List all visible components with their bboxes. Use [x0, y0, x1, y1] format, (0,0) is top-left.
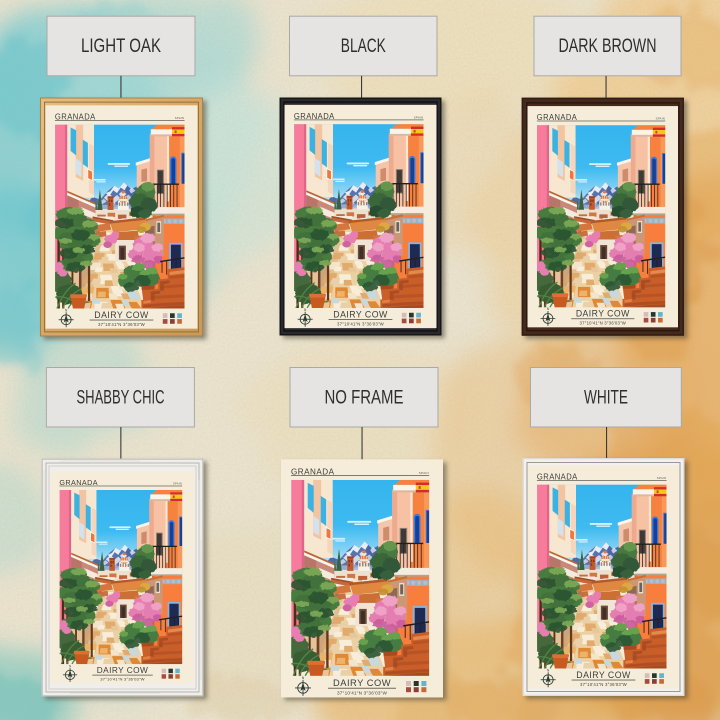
svg-text:DARK BROWN: DARK BROWN [559, 35, 657, 57]
svg-text:NO FRAME: NO FRAME [325, 387, 404, 409]
svg-text:LIGHT OAK: LIGHT OAK [81, 35, 161, 57]
svg-text:SHABBY CHIC: SHABBY CHIC [77, 387, 165, 409]
svg-text:BLACK: BLACK [341, 35, 386, 57]
svg-text:WHITE: WHITE [584, 387, 628, 409]
